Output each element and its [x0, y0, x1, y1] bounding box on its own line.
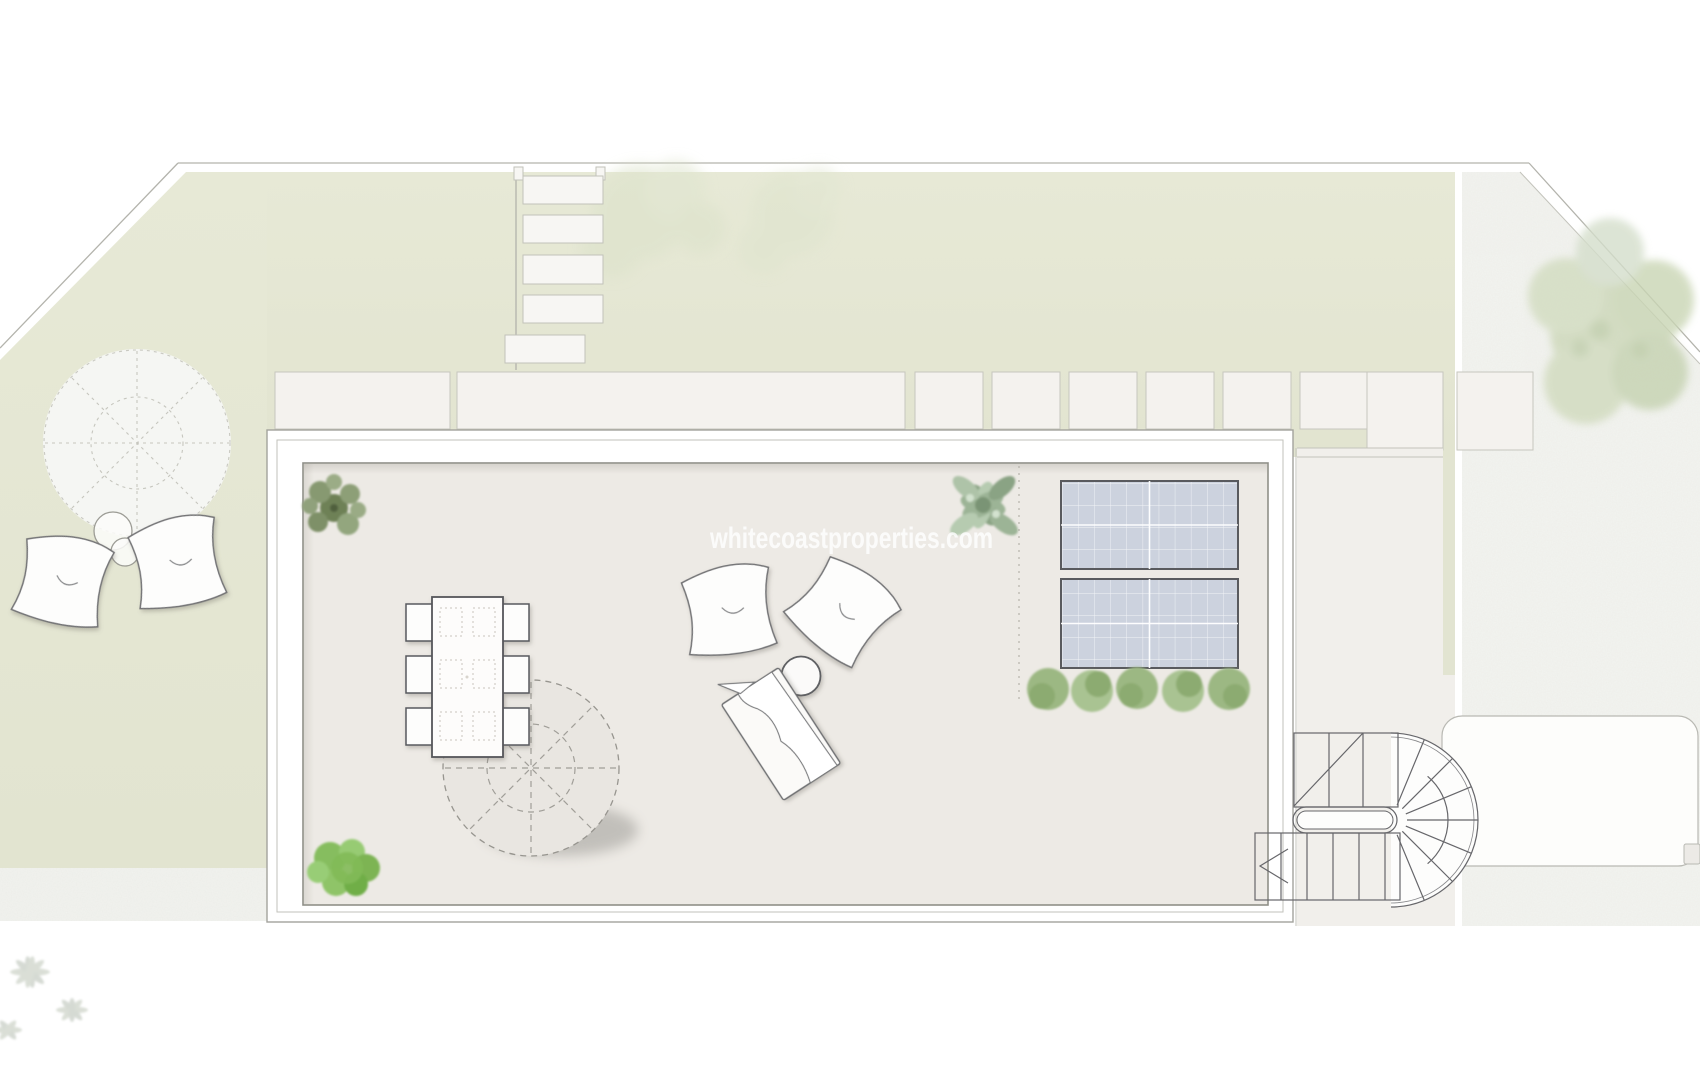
floor-shadow-top — [304, 464, 1267, 474]
ground-plants — [0, 956, 88, 1042]
paver-slab — [457, 372, 905, 429]
stepping-stone — [523, 176, 603, 204]
stepping-stone — [523, 215, 603, 243]
dining-set — [406, 597, 529, 757]
stepping-stone — [523, 255, 603, 284]
garden-right-strip — [1443, 457, 1455, 675]
stepping-stone — [505, 335, 585, 363]
paver-square — [1367, 372, 1443, 450]
watermark-text: whitecoastproperties.com — [709, 522, 993, 555]
dining-chair — [406, 604, 433, 641]
paver-slab — [275, 372, 450, 429]
parasol-garden — [43, 349, 231, 537]
plan-canvas: whitecoastproperties.com — [0, 0, 1700, 1080]
paver-square — [1069, 372, 1137, 429]
paver-square — [1300, 372, 1368, 429]
gate-post-left — [514, 167, 523, 180]
paver-square — [992, 372, 1060, 429]
dining-chair — [502, 656, 529, 693]
carport-vehicle — [1442, 716, 1700, 866]
hedge-shrubs — [1027, 667, 1250, 712]
paver-square — [1223, 372, 1291, 429]
site-plan: whitecoastproperties.com — [0, 0, 1700, 1080]
paver-square — [1146, 372, 1214, 429]
dining-chair — [406, 656, 433, 693]
table-center-dot — [466, 676, 469, 679]
dining-chair — [502, 604, 529, 641]
paver-square — [1457, 372, 1533, 450]
gravel-strip-left — [0, 868, 277, 921]
paver-square — [915, 372, 983, 429]
stair-center-rail-inner — [1297, 811, 1393, 829]
stepping-stone — [523, 295, 603, 323]
bean-bag — [680, 561, 777, 658]
solar-panel-1 — [1061, 481, 1238, 569]
dining-chair — [502, 708, 529, 745]
dining-chair — [406, 708, 433, 745]
solar-panel-2 — [1061, 579, 1238, 668]
